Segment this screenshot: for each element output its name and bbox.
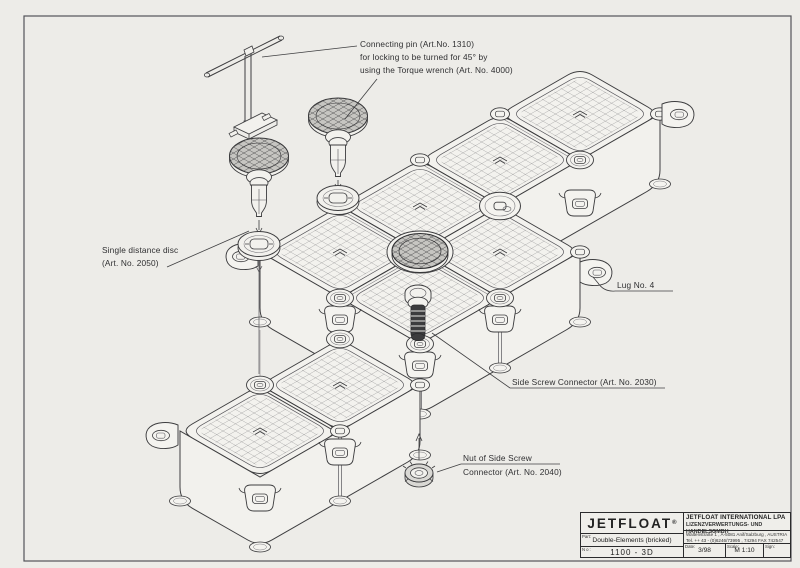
scale-label: Scale: — [727, 544, 739, 549]
company-name: JETFLOAT INTERNATIONAL LPA — [686, 514, 788, 522]
note-lug: Lug No. 4 — [617, 280, 655, 290]
center-connecting-pin — [387, 231, 453, 273]
number-cell: No: 1100 - 3D — [581, 547, 683, 557]
lug-ear-no4 — [580, 260, 612, 286]
date-cell: Date: 3/98 — [684, 544, 726, 557]
scale-cell: Scale: M 1:10 — [726, 544, 764, 557]
connecting-pin-left — [230, 138, 289, 234]
part-cell: Part: Double-Elements (bricked) — [581, 534, 683, 547]
note-distance-disc-line1: Single distance disc — [102, 245, 178, 255]
number-value: 1100 - 3D — [610, 548, 654, 557]
lug-ear-exploded-left — [146, 423, 178, 449]
drawing-sheet: Connecting pin (Art.No. 1310) for lockin… — [0, 0, 800, 568]
part-label: Part: — [582, 534, 591, 539]
registered-mark: ® — [672, 520, 676, 526]
date-label: Date: — [685, 544, 695, 549]
company-cell: JETFLOAT INTERNATIONAL LPA LIZENZVERWERT… — [684, 513, 790, 531]
number-label: No: — [582, 547, 592, 552]
large-corner-pocket — [480, 192, 521, 220]
connecting-pin-right — [309, 98, 368, 190]
sign-label: Sign: — [765, 544, 775, 549]
note-connecting-pin-line1: Connecting pin (Art.No. 1310) — [360, 39, 474, 49]
address-cell: Waltenstraße 1 , A-5081 Anif/Salzburg , … — [684, 531, 790, 544]
note-nut-line1: Nut of Side Screw — [463, 453, 533, 463]
date-value: 3/98 — [698, 547, 711, 554]
note-nut-line2: Connector (Art. No. 2040) — [463, 467, 562, 477]
note-connecting-pin-line2: for locking to be turned for 45° by — [360, 52, 488, 62]
note-connecting-pin-line3: using the Torque wrench (Art. No. 4000) — [360, 65, 513, 75]
title-block: JETFLOAT® Part: Double-Elements (bricked… — [580, 512, 791, 558]
part-value: Double-Elements (bricked) — [592, 537, 671, 544]
distance-disc-right — [317, 186, 359, 215]
sign-cell: Sign: — [764, 544, 790, 557]
brand-logo: JETFLOAT® — [581, 513, 683, 534]
note-distance-disc-line2: (Art. No. 2050) — [102, 258, 159, 268]
technical-drawing-canvas: Connecting pin (Art.No. 1310) for lockin… — [0, 0, 800, 568]
lug-ear-top-right — [662, 102, 694, 128]
torque-wrench — [204, 36, 283, 139]
brand-name: JETFLOAT — [587, 516, 672, 531]
note-side-screw: Side Screw Connector (Art. No. 2030) — [512, 377, 657, 387]
